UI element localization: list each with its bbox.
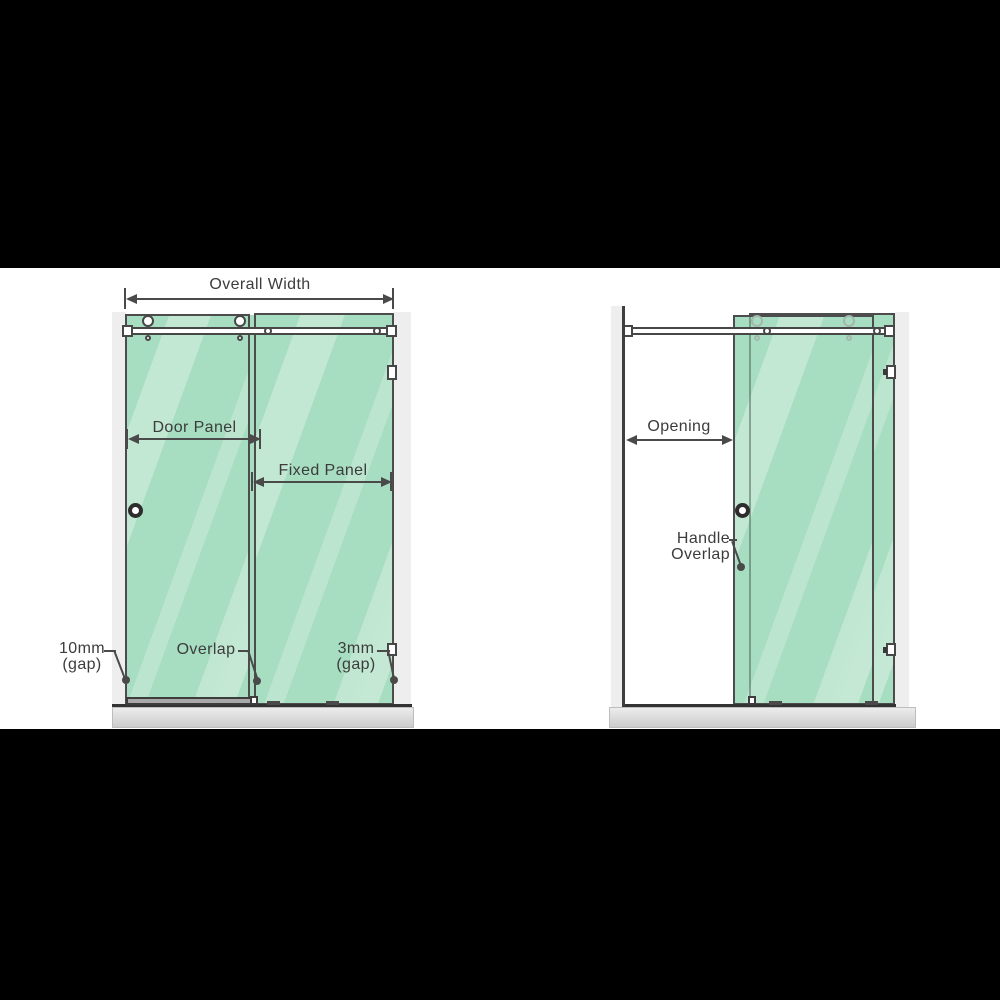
handle-overlap-line1: Handle <box>652 531 730 547</box>
roller-wheel-icon <box>142 315 154 327</box>
roller-bolt-icon <box>237 335 243 341</box>
shower-tray <box>609 707 916 728</box>
top-rail <box>624 327 895 335</box>
fixed-panel-label: Fixed Panel <box>253 463 393 479</box>
gap-10mm-value: 10mm <box>56 641 108 657</box>
extension-tick <box>126 429 128 449</box>
roller-wheel-icon <box>234 315 246 327</box>
wall-clamp-icon <box>886 643 896 656</box>
shower-tray <box>112 707 414 728</box>
extension-tick <box>124 288 126 309</box>
rail-fastener-icon <box>373 327 381 335</box>
rail-end-cap-left <box>122 325 133 337</box>
arrowhead-right-icon <box>722 435 733 445</box>
floor-line <box>622 704 896 707</box>
bottom-pad <box>769 701 782 705</box>
leader-dot-icon <box>390 676 398 684</box>
wall-strip-left <box>112 312 126 706</box>
leader-dot-icon <box>122 676 130 684</box>
door-panel-glass <box>733 315 874 705</box>
arrowhead-left-icon <box>253 477 264 487</box>
extension-tick <box>251 472 253 491</box>
gap-3mm-label: 3mm (gap) <box>332 641 380 673</box>
arrowhead-left-icon <box>126 294 137 304</box>
rail-end-cap-right <box>386 325 397 337</box>
wall-edge-line <box>622 306 625 706</box>
rail-fastener-icon <box>264 327 272 335</box>
door-panel-label: Door Panel <box>128 420 261 436</box>
opening-dimension-line <box>634 439 725 441</box>
extension-tick <box>392 288 394 309</box>
handle-overlap-label: Handle Overlap <box>652 531 730 563</box>
bottom-guide-block <box>250 696 258 705</box>
letterbox-top <box>0 0 1000 268</box>
roller-bolt-icon <box>145 335 151 341</box>
arrowhead-left-icon <box>128 434 139 444</box>
leader-dot-icon <box>253 677 261 685</box>
roller-bolt-ghost-icon <box>846 335 852 341</box>
bottom-pad <box>865 701 878 705</box>
top-rail <box>126 327 394 335</box>
rail-end-cap-right <box>884 325 895 337</box>
gap-10mm-label: 10mm (gap) <box>56 641 108 673</box>
clamp-knob-icon <box>883 369 887 375</box>
wall-strip-right <box>895 312 909 715</box>
overlap-label: Overlap <box>170 642 242 658</box>
rail-fastener-icon <box>763 327 771 335</box>
door-handle-icon <box>128 503 143 518</box>
diagram-stage: Overall Width Door Panel Fixed Panel 10m… <box>0 0 1000 1000</box>
bottom-pad <box>267 701 280 705</box>
gap-3mm-unit: (gap) <box>332 657 380 673</box>
gap-3mm-value: 3mm <box>332 641 380 657</box>
roller-wheel-ghost-icon <box>843 315 855 327</box>
roller-bolt-ghost-icon <box>754 335 760 341</box>
arrowhead-left-icon <box>626 435 637 445</box>
letterbox-bottom <box>0 729 1000 1000</box>
roller-wheel-ghost-icon <box>751 315 763 327</box>
wall-clamp-icon <box>886 365 896 379</box>
handle-overlap-line2: Overlap <box>652 547 730 563</box>
overall-width-label: Overall Width <box>126 277 394 293</box>
rail-fastener-icon <box>873 327 881 335</box>
fixed-panel-dimension-line <box>261 481 383 483</box>
overall-width-dimension-line <box>134 298 384 300</box>
clamp-knob-icon <box>883 647 887 653</box>
extension-tick <box>390 472 392 491</box>
door-handle-icon <box>735 503 750 518</box>
bottom-guide-rail <box>126 697 254 705</box>
bottom-pad <box>326 701 339 705</box>
extension-tick <box>259 429 261 449</box>
gap-10mm-unit: (gap) <box>56 657 108 673</box>
bottom-guide-block <box>748 696 756 705</box>
opening-label: Opening <box>627 419 731 435</box>
door-panel-dimension-line <box>136 438 253 440</box>
leader-dot-icon <box>737 563 745 571</box>
wall-clamp-icon <box>387 365 397 380</box>
